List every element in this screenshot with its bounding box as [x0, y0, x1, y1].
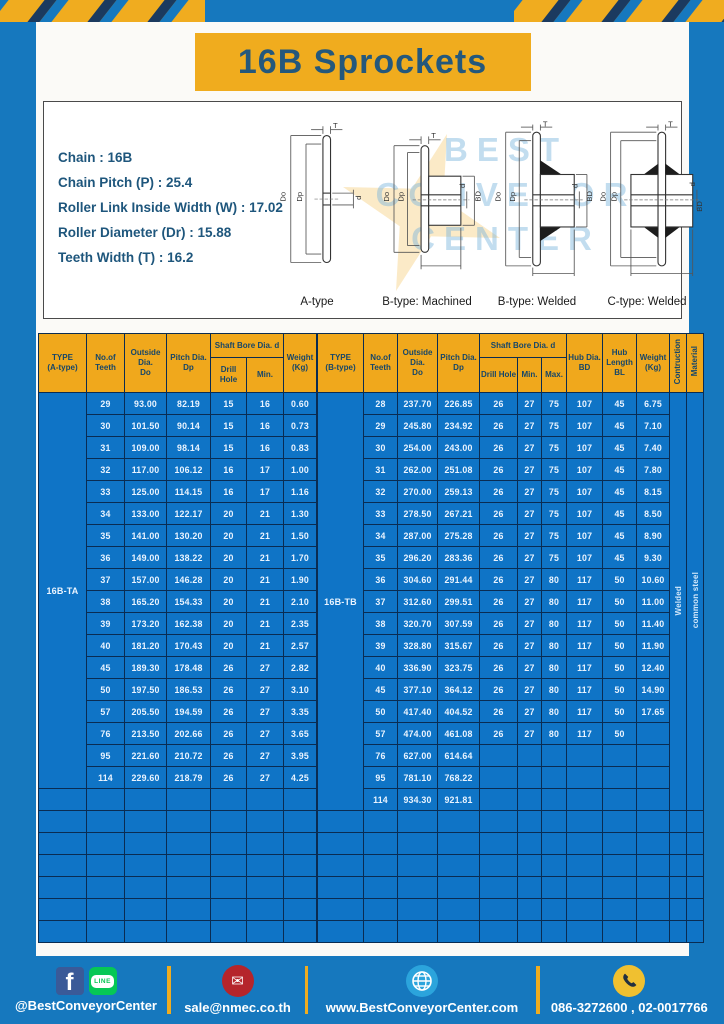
- cell: [567, 789, 603, 811]
- cell: 16: [247, 393, 284, 415]
- page-title: 16B Sprockets: [195, 33, 531, 91]
- table-row-empty: [318, 921, 704, 943]
- cell: 26: [211, 745, 247, 767]
- table-a-type: TYPE (A-type) No.of Teeth Outside Dia. D…: [38, 333, 317, 943]
- empty-cell: [637, 921, 670, 943]
- cell: 27: [247, 657, 284, 679]
- spec-line-roller-width: Roller Link Inside Width (W) : 17.02: [58, 196, 283, 221]
- cell: 7.40: [637, 437, 670, 459]
- cell: 117: [567, 723, 603, 745]
- cell: 27: [518, 415, 542, 437]
- cell: 21: [247, 635, 284, 657]
- svg-text:T: T: [431, 131, 436, 140]
- cell: 162.38: [167, 613, 211, 635]
- cell: 80: [542, 591, 567, 613]
- empty-cell: [318, 811, 364, 833]
- col-header-type: TYPE (B-type): [318, 334, 364, 393]
- col-header-outside-dia: Outside Dia. Do: [125, 334, 167, 393]
- empty-cell: [247, 789, 284, 811]
- cell: 461.08: [438, 723, 480, 745]
- cell: 101.50: [125, 415, 167, 437]
- empty-cell: [518, 833, 542, 855]
- cell: 26: [480, 525, 518, 547]
- col-header-max: Max.: [542, 358, 567, 393]
- cell: 254.00: [398, 437, 438, 459]
- empty-cell: [211, 789, 247, 811]
- col-header-shaft-bore-group: Shaft Bore Dia. d: [480, 334, 567, 358]
- table-row: 16B-TB28237.70226.85262775107456.75Welde…: [318, 393, 704, 415]
- hazard-stripe: [48, 0, 119, 22]
- cell: 75: [542, 481, 567, 503]
- footer-divider: [167, 966, 171, 1014]
- cell: 27: [518, 525, 542, 547]
- cell: 8.15: [637, 481, 670, 503]
- empty-cell: [211, 921, 247, 943]
- svg-text:T: T: [333, 121, 338, 130]
- cell: 26: [480, 635, 518, 657]
- cell: 114: [87, 767, 125, 789]
- cell: 27: [518, 701, 542, 723]
- cell: 27: [247, 745, 284, 767]
- cell: 186.53: [167, 679, 211, 701]
- cell: 377.10: [398, 679, 438, 701]
- empty-cell: [438, 833, 480, 855]
- cell: 109.00: [125, 437, 167, 459]
- empty-cell: [542, 899, 567, 921]
- cell: 213.50: [125, 723, 167, 745]
- cell: 28: [364, 393, 398, 415]
- cell: [637, 745, 670, 767]
- cell: 117: [567, 701, 603, 723]
- empty-cell: [211, 811, 247, 833]
- cell: 107: [567, 437, 603, 459]
- hazard-stripe: [682, 0, 724, 22]
- table-row-empty: [39, 811, 317, 833]
- cell: 80: [542, 679, 567, 701]
- cell: [518, 767, 542, 789]
- cell: 117: [567, 679, 603, 701]
- cell: 336.90: [398, 657, 438, 679]
- col-header-pitch-dia: Pitch Dia. Dp: [167, 334, 211, 393]
- cell: 35: [87, 525, 125, 547]
- cell: 16: [247, 437, 284, 459]
- cell: [603, 789, 637, 811]
- col-header-hub-length: Hub Length BL: [603, 334, 637, 393]
- hazard-stripes-right: [514, 0, 724, 22]
- material-value: common steel: [687, 393, 704, 811]
- empty-cell: [398, 811, 438, 833]
- empty-cell: [637, 855, 670, 877]
- footer-phone-numbers: 086-3272600 , 02-0017766: [551, 1000, 708, 1015]
- empty-cell: [542, 921, 567, 943]
- cell: 117: [567, 635, 603, 657]
- figure-label: A-type: [300, 296, 333, 308]
- cell: 37: [364, 591, 398, 613]
- cell: 50: [603, 591, 637, 613]
- empty-cell: [603, 877, 637, 899]
- cell: 27: [518, 613, 542, 635]
- cell: 75: [542, 393, 567, 415]
- cell: 8.50: [637, 503, 670, 525]
- cell: 312.60: [398, 591, 438, 613]
- cell: 45: [364, 679, 398, 701]
- cell: 12.40: [637, 657, 670, 679]
- cell: 95: [87, 745, 125, 767]
- cell: 80: [542, 701, 567, 723]
- cell: 16: [247, 415, 284, 437]
- svg-text:d: d: [354, 196, 363, 200]
- cell: [567, 745, 603, 767]
- empty-cell: [125, 811, 167, 833]
- col-header-weight: Weight (Kg): [637, 334, 670, 393]
- empty-cell: [211, 855, 247, 877]
- empty-cell: [318, 899, 364, 921]
- empty-cell: [518, 899, 542, 921]
- empty-cell: [247, 833, 284, 855]
- table-row: 45377.10364.122627801175014.90: [318, 679, 704, 701]
- cell: 7.10: [637, 415, 670, 437]
- cell: 107: [567, 393, 603, 415]
- empty-cell: [542, 877, 567, 899]
- cell: 234.92: [438, 415, 480, 437]
- cell: [480, 789, 518, 811]
- cell: 98.14: [167, 437, 211, 459]
- cell: 15: [211, 437, 247, 459]
- cell: 30: [87, 415, 125, 437]
- cell: 0.83: [284, 437, 317, 459]
- cell: 26: [211, 701, 247, 723]
- hazard-stripe: [622, 0, 693, 22]
- empty-cell: [687, 833, 704, 855]
- cell: 26: [480, 547, 518, 569]
- cell: 141.00: [125, 525, 167, 547]
- cell: 8.90: [637, 525, 670, 547]
- empty-cell: [87, 899, 125, 921]
- cell: 2.57: [284, 635, 317, 657]
- empty-cell: [284, 833, 317, 855]
- cell: [542, 789, 567, 811]
- empty-cell: [247, 899, 284, 921]
- empty-cell: [398, 833, 438, 855]
- cell: 27: [247, 701, 284, 723]
- cell: 0.73: [284, 415, 317, 437]
- cell: 125.00: [125, 481, 167, 503]
- empty-cell: [39, 899, 87, 921]
- cell: 45: [603, 503, 637, 525]
- empty-cell: [39, 921, 87, 943]
- footer-email: ✉ sale@nmec.co.th: [174, 965, 302, 1015]
- empty-cell: [167, 789, 211, 811]
- empty-cell: [480, 921, 518, 943]
- cell: 36: [87, 547, 125, 569]
- table-row-empty: [318, 833, 704, 855]
- table-row: 34287.00275.28262775107458.90: [318, 525, 704, 547]
- cell: 21: [247, 525, 284, 547]
- spec-line-teeth-width: Teeth Width (T) : 16.2: [58, 246, 283, 271]
- empty-cell: [87, 789, 125, 811]
- empty-cell: [480, 811, 518, 833]
- empty-cell: [125, 789, 167, 811]
- empty-cell: [247, 811, 284, 833]
- cell: 33: [87, 481, 125, 503]
- cell: 27: [518, 393, 542, 415]
- table-row-empty: [39, 921, 317, 943]
- table-a-body: 16B-TA2993.0082.1915160.6030101.5090.141…: [39, 393, 317, 943]
- cell: 146.28: [167, 569, 211, 591]
- empty-cell: [167, 921, 211, 943]
- cell: 45: [603, 547, 637, 569]
- cell: 287.00: [398, 525, 438, 547]
- cell: 614.64: [438, 745, 480, 767]
- empty-cell: [603, 899, 637, 921]
- cell: 36: [364, 569, 398, 591]
- empty-cell: [480, 855, 518, 877]
- cell: 26: [211, 657, 247, 679]
- footer-social-icons: f LINE: [56, 967, 117, 995]
- cell: [480, 767, 518, 789]
- empty-cell: [438, 855, 480, 877]
- table-row: 38320.70307.592627801175011.40: [318, 613, 704, 635]
- empty-cell: [211, 833, 247, 855]
- table-row: 50417.40404.522627801175017.65: [318, 701, 704, 723]
- cell: 1.50: [284, 525, 317, 547]
- cell: 40: [87, 635, 125, 657]
- empty-cell: [518, 877, 542, 899]
- figure-b-type-welded: T Do Dp d BD: [482, 106, 592, 314]
- cell: 27: [247, 767, 284, 789]
- svg-text:Do: Do: [494, 192, 503, 202]
- svg-text:Dp: Dp: [610, 192, 619, 202]
- cell: 117: [567, 613, 603, 635]
- table-b-body: 16B-TB28237.70226.85262775107456.75Welde…: [318, 393, 704, 943]
- cell: 107: [567, 481, 603, 503]
- cell: 93.00: [125, 393, 167, 415]
- empty-cell: [87, 877, 125, 899]
- cell: 95: [364, 767, 398, 789]
- cell: 245.80: [398, 415, 438, 437]
- empty-cell: [39, 855, 87, 877]
- cell: 283.36: [438, 547, 480, 569]
- cell: 474.00: [398, 723, 438, 745]
- empty-cell: [603, 833, 637, 855]
- col-header-outside-dia: Outside Dia. Do: [398, 334, 438, 393]
- empty-cell: [39, 877, 87, 899]
- empty-cell: [518, 921, 542, 943]
- empty-cell: [364, 877, 398, 899]
- empty-cell: [364, 921, 398, 943]
- empty-cell: [39, 833, 87, 855]
- cell: 45: [603, 437, 637, 459]
- empty-cell: [398, 855, 438, 877]
- table-b-type: TYPE (B-type) No.of Teeth Outside Dia. D…: [317, 333, 704, 943]
- cell: 27: [518, 437, 542, 459]
- svg-text:d: d: [571, 184, 580, 188]
- cell: 50: [603, 613, 637, 635]
- table-row-empty: [39, 855, 317, 877]
- cell: 226.85: [438, 393, 480, 415]
- col-header-type: TYPE (A-type): [39, 334, 87, 393]
- cell: 75: [542, 459, 567, 481]
- empty-cell: [567, 833, 603, 855]
- cell: 80: [542, 657, 567, 679]
- col-header-drill-hole: Drill Hole: [211, 358, 247, 393]
- cell: 27: [518, 591, 542, 613]
- empty-cell: [87, 833, 125, 855]
- empty-cell: [284, 855, 317, 877]
- table-row-empty: [39, 899, 317, 921]
- svg-text:Do: Do: [382, 192, 391, 202]
- cell: 3.65: [284, 723, 317, 745]
- cell: 26: [480, 503, 518, 525]
- cell: 1.00: [284, 459, 317, 481]
- cell: 243.00: [438, 437, 480, 459]
- cell: 21: [247, 503, 284, 525]
- cell: 26: [211, 679, 247, 701]
- cell: 35: [364, 547, 398, 569]
- cell: 26: [480, 701, 518, 723]
- empty-cell: [318, 855, 364, 877]
- hazard-stripe: [0, 0, 60, 22]
- cell: 117.00: [125, 459, 167, 481]
- cell: 107: [567, 503, 603, 525]
- cell: 170.43: [167, 635, 211, 657]
- table-row: 31262.00251.08262775107457.80: [318, 459, 704, 481]
- cell: 7.80: [637, 459, 670, 481]
- empty-cell: [125, 855, 167, 877]
- cell: 291.44: [438, 569, 480, 591]
- table-row: 37312.60299.512627801175011.00: [318, 591, 704, 613]
- cell: 20: [211, 591, 247, 613]
- col-header-min: Min.: [247, 358, 284, 393]
- cell: 26: [480, 481, 518, 503]
- col-header-teeth: No.of Teeth: [364, 334, 398, 393]
- svg-text:Dp: Dp: [508, 192, 517, 202]
- table-row-empty: [318, 899, 704, 921]
- empty-cell: [670, 811, 687, 833]
- empty-cell: [284, 789, 317, 811]
- footer-social-handle: @BestConveyorCenter: [15, 998, 157, 1013]
- empty-cell: [480, 833, 518, 855]
- cell: 82.19: [167, 393, 211, 415]
- cell: 275.28: [438, 525, 480, 547]
- empty-cell: [87, 855, 125, 877]
- cell: 154.33: [167, 591, 211, 613]
- cell: 328.80: [398, 635, 438, 657]
- empty-cell: [364, 899, 398, 921]
- cell: 75: [542, 437, 567, 459]
- cell: 75: [542, 525, 567, 547]
- table-row: 39328.80315.672627801175011.90: [318, 635, 704, 657]
- cell: 267.21: [438, 503, 480, 525]
- empty-cell: [167, 833, 211, 855]
- cell: 0.60: [284, 393, 317, 415]
- empty-cell: [637, 877, 670, 899]
- cell: 27: [518, 459, 542, 481]
- cell: 50: [603, 701, 637, 723]
- table-row-empty: [39, 833, 317, 855]
- table-row: 40336.90323.752627801175012.40: [318, 657, 704, 679]
- cell: 107: [567, 547, 603, 569]
- hazard-stripes-left: [0, 0, 205, 22]
- empty-cell: [167, 855, 211, 877]
- empty-cell: [567, 811, 603, 833]
- cell: 29: [364, 415, 398, 437]
- cell: 80: [542, 569, 567, 591]
- table-row: 76627.00614.64: [318, 745, 704, 767]
- hazard-stripe: [514, 0, 574, 22]
- cell: 1.90: [284, 569, 317, 591]
- cell: 34: [364, 525, 398, 547]
- globe-icon: [406, 965, 438, 997]
- cell: 229.60: [125, 767, 167, 789]
- cell: 270.00: [398, 481, 438, 503]
- empty-cell: [670, 899, 687, 921]
- cell: 304.60: [398, 569, 438, 591]
- col-header-teeth: No.of Teeth: [87, 334, 125, 393]
- cell: 221.60: [125, 745, 167, 767]
- col-header-pitch-dia: Pitch Dia. Dp: [438, 334, 480, 393]
- cell: 781.10: [398, 767, 438, 789]
- empty-cell: [398, 921, 438, 943]
- svg-text:T: T: [668, 119, 673, 128]
- cell: 107: [567, 415, 603, 437]
- cell: 50: [87, 679, 125, 701]
- b-type-machined-drawing-icon: T Do Dp d BD: [372, 112, 482, 292]
- svg-text:Dp: Dp: [295, 192, 304, 202]
- cell: 181.20: [125, 635, 167, 657]
- cell: 627.00: [398, 745, 438, 767]
- figure-label: B-type: Welded: [498, 296, 576, 308]
- empty-cell: [125, 877, 167, 899]
- figure-c-type-welded: T Do Dp d BD C-type: W: [592, 106, 702, 314]
- cell: 107: [567, 525, 603, 547]
- cell: 6.75: [637, 393, 670, 415]
- empty-cell: [687, 811, 704, 833]
- cell: 16: [211, 481, 247, 503]
- cell: 45: [603, 415, 637, 437]
- empty-cell: [284, 811, 317, 833]
- chain-spec-list: Chain : 16B Chain Pitch (P) : 25.4 Rolle…: [58, 146, 283, 271]
- cell: 27: [518, 481, 542, 503]
- empty-cell: [247, 877, 284, 899]
- cell: 26: [480, 393, 518, 415]
- cell: 39: [87, 613, 125, 635]
- cell: 27: [518, 503, 542, 525]
- cell: 27: [518, 635, 542, 657]
- cell: 27: [518, 679, 542, 701]
- cell: 40: [364, 657, 398, 679]
- svg-text:Dp: Dp: [396, 192, 405, 202]
- cell: 15: [211, 393, 247, 415]
- table-b-header: TYPE (B-type) No.of Teeth Outside Dia. D…: [318, 334, 704, 393]
- cell: 1.70: [284, 547, 317, 569]
- table-header-row: TYPE (B-type) No.of Teeth Outside Dia. D…: [318, 334, 704, 358]
- cell: 2.35: [284, 613, 317, 635]
- cell: 20: [211, 613, 247, 635]
- cell: 50: [364, 701, 398, 723]
- footer-contact-bar: f LINE @BestConveyorCenter ✉ sale@nmec.c…: [0, 956, 724, 1024]
- cell: [518, 789, 542, 811]
- hazard-stripe: [108, 0, 179, 22]
- empty-cell: [364, 811, 398, 833]
- cell: 237.70: [398, 393, 438, 415]
- empty-cell: [567, 921, 603, 943]
- cell: 21: [247, 591, 284, 613]
- cell: 114: [364, 789, 398, 811]
- cell: 27: [247, 679, 284, 701]
- cell: 259.13: [438, 481, 480, 503]
- empty-cell: [247, 921, 284, 943]
